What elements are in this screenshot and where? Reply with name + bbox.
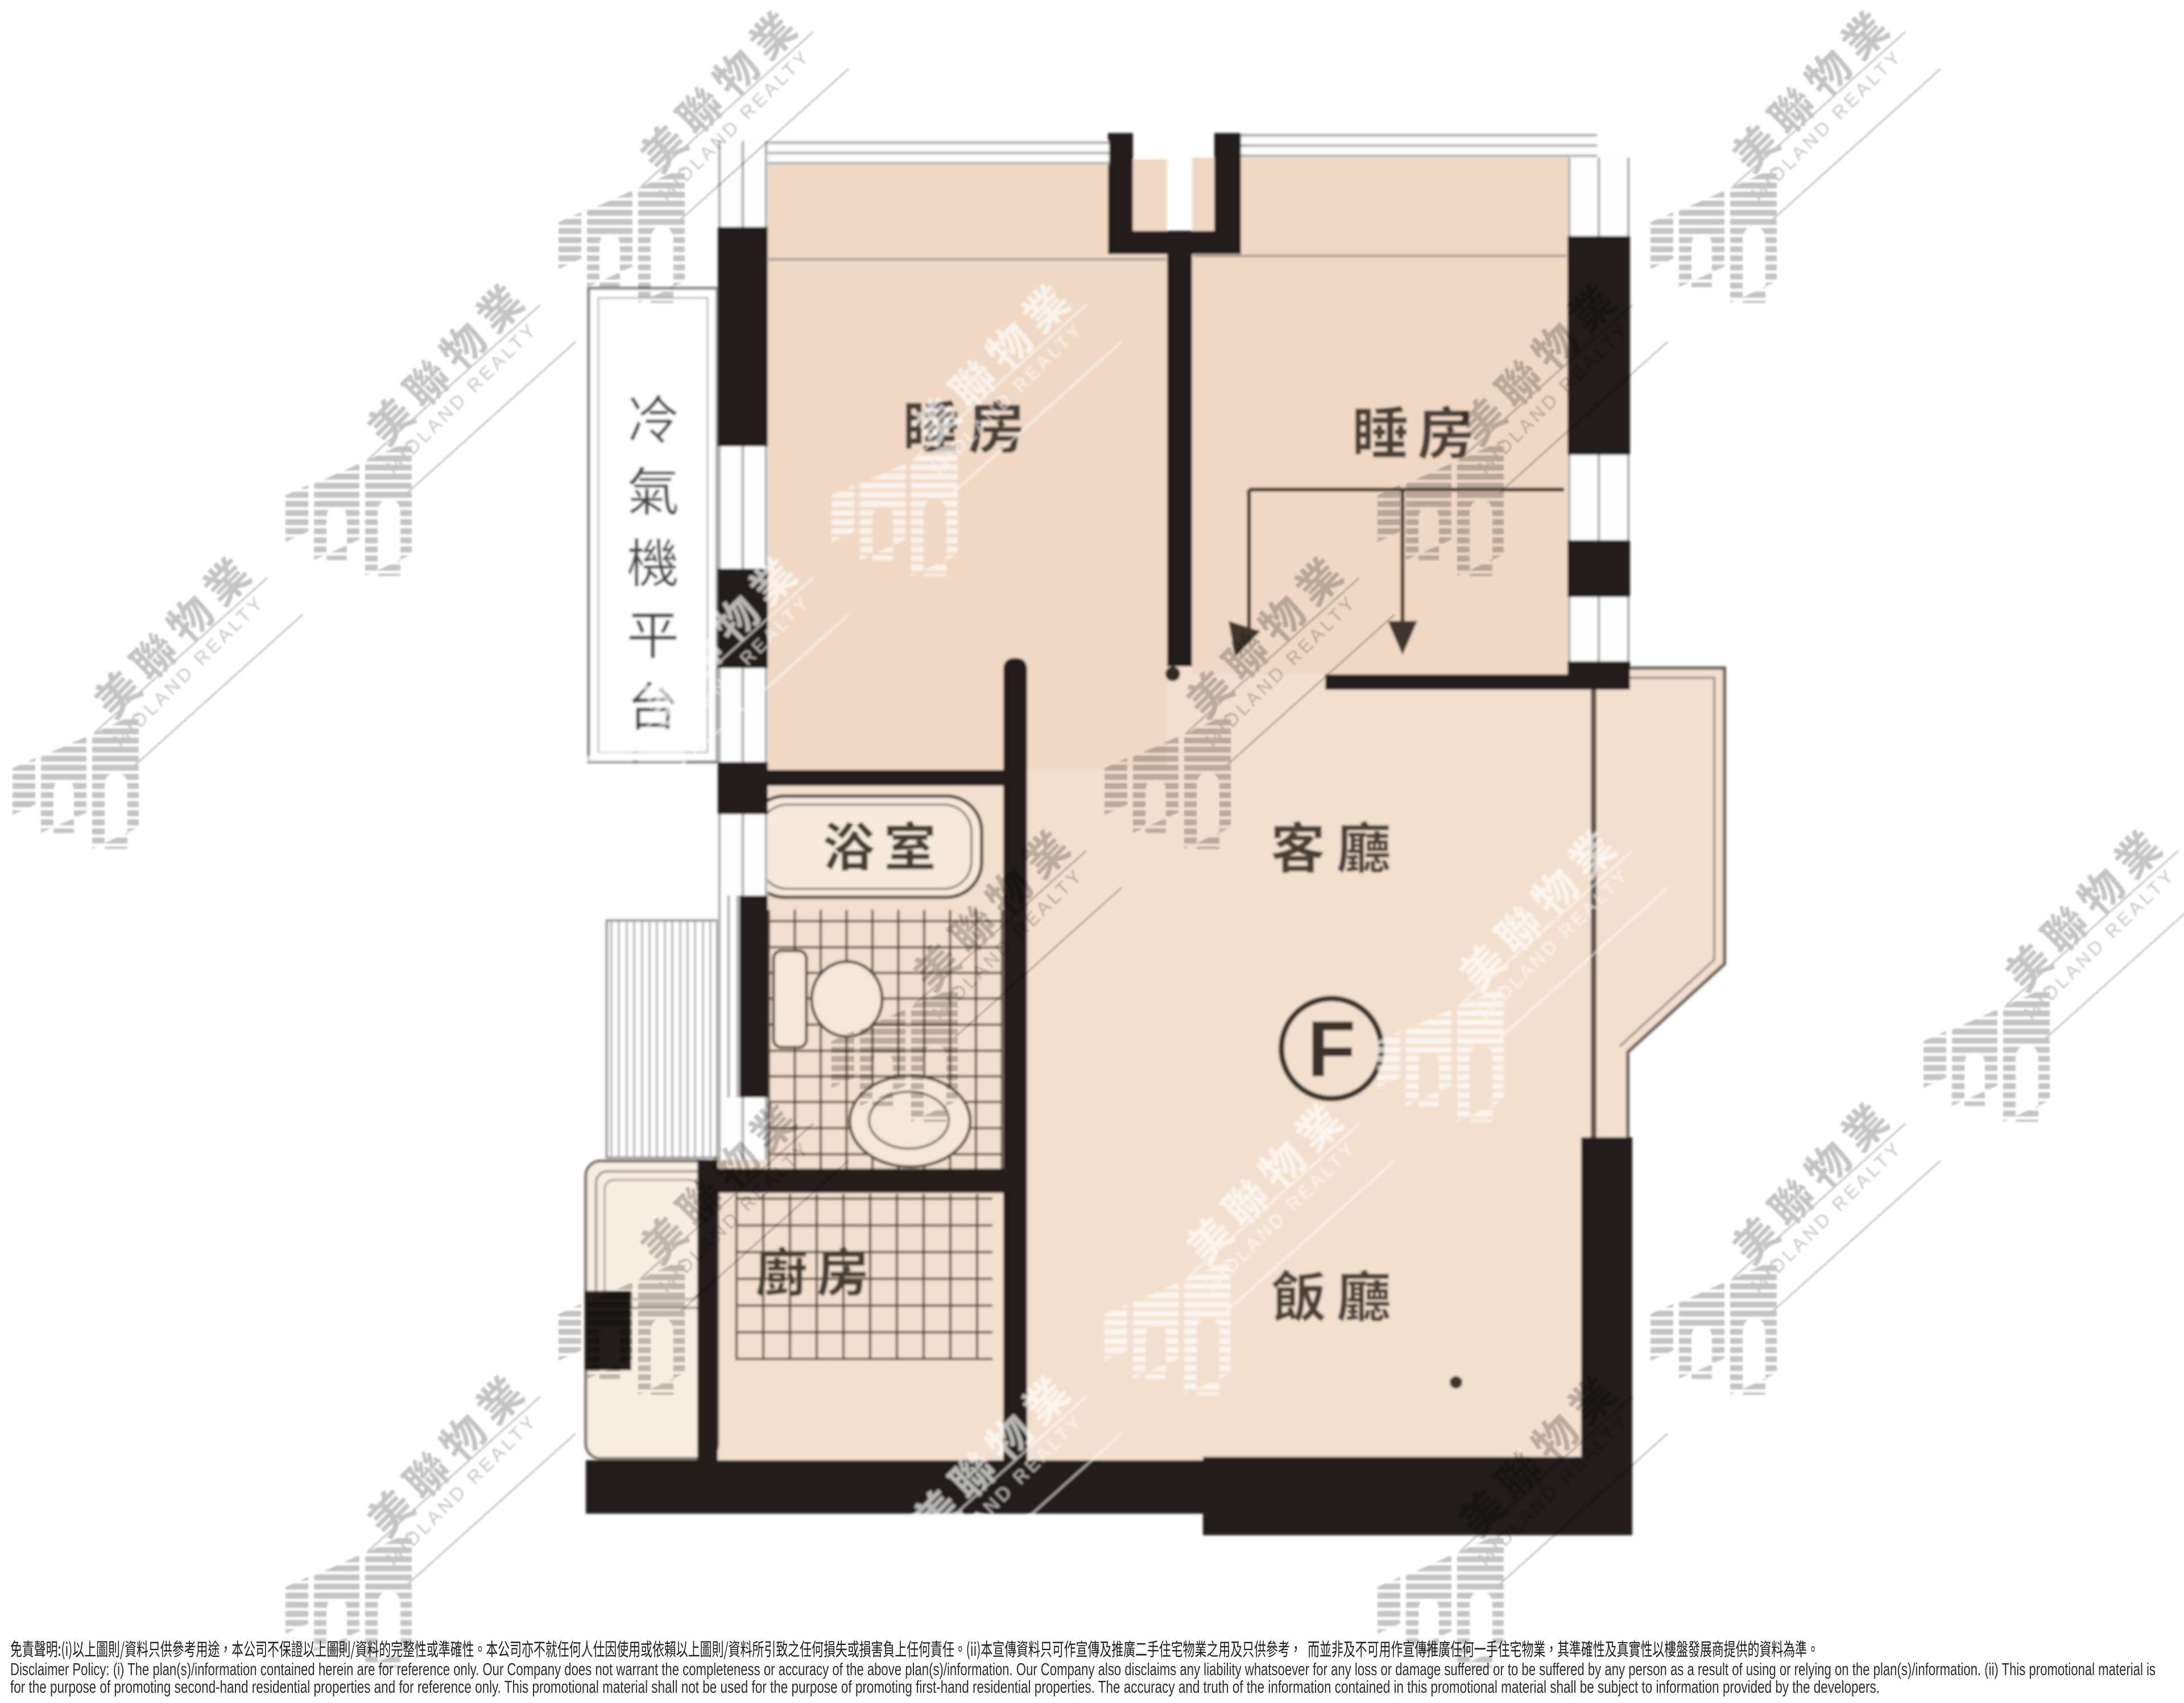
svg-text:Disclaimer Policy: (i) The pla: Disclaimer Policy: (i) The plan(s)/infor… [10,1659,2156,1679]
svg-text:for the purpose of promoting s: for the purpose of promoting second-hand… [10,1677,1880,1697]
svg-text:F: F [1307,1004,1356,1093]
